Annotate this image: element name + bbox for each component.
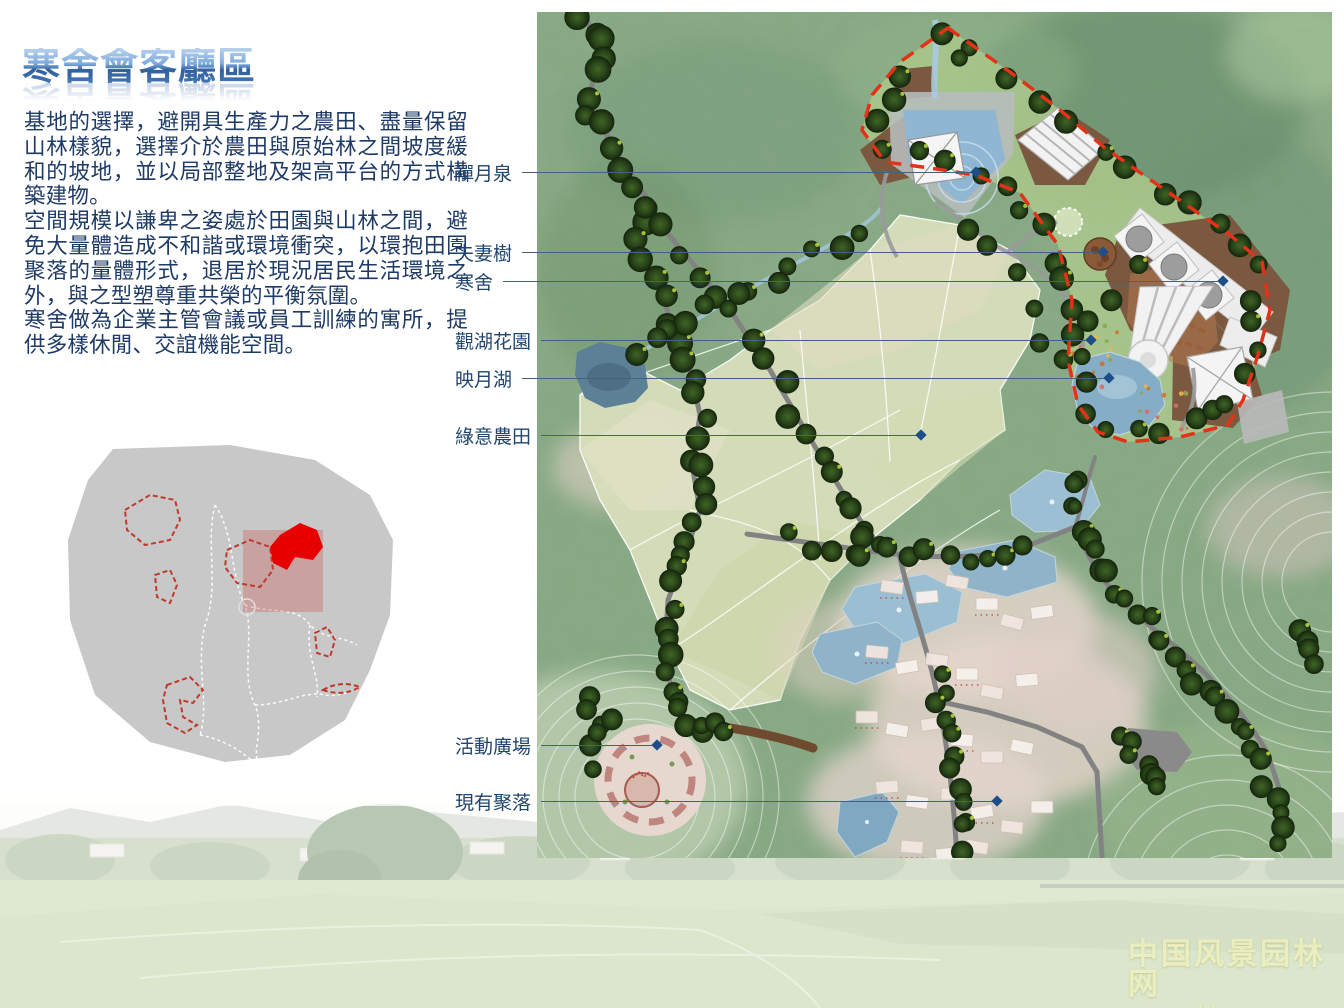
leader-line (541, 801, 996, 802)
locator-map (55, 435, 400, 790)
leader-line (541, 340, 1090, 341)
plan-label-text: 寒舍 (455, 268, 493, 295)
leader-line (503, 281, 1222, 282)
leader-line (522, 378, 1108, 379)
title-block: 寒舍會客廳區 寒舍會客廳區 (22, 48, 256, 117)
leader-diamond (651, 739, 662, 750)
watermark: 中国风景园林网 chla.com.cn (1128, 940, 1344, 1008)
intro-paragraph-1: 基地的選擇，避開具生產力之農田、盡量保留山林樣貌，選擇介於農田與原始林之間坡度緩… (24, 110, 468, 209)
watermark-site-url: chla.com.cn (1186, 1004, 1344, 1008)
leader-line (541, 745, 656, 746)
leader-diamond (1097, 246, 1108, 257)
leader-diamond (970, 166, 981, 177)
leader-diamond (1217, 275, 1228, 286)
locator-site-blob (68, 445, 393, 762)
plan-label-zen-moon-spring: 禪月泉 (455, 159, 980, 185)
round-terrace (1054, 208, 1082, 236)
leader-line (522, 252, 1102, 253)
leader-line (541, 435, 920, 436)
leader-line (522, 172, 975, 173)
plan-label-text: 映月湖 (455, 365, 512, 392)
leader-diamond (915, 429, 926, 440)
plan-label-hanshe-lodge: 寒舍 (455, 268, 1227, 294)
plan-label-existing-settlement: 現有聚落 (455, 788, 1001, 814)
watermark-site-name: 中国风景园林网 (1128, 940, 1344, 1000)
plan-label-green-farmland: 綠意農田 (455, 422, 925, 448)
intro-paragraph-2: 空間規模以謙卑之姿處於田園與山林之間，避免大量體造成不和諧或環境衝突，以環抱田園… (24, 209, 468, 308)
intro-paragraph-3: 寒舍做為企業主管會議或員工訓練的寓所，提供多樣休閒、交誼機能空間。 (24, 308, 468, 358)
plan-label-text: 夫妻樹 (455, 239, 512, 266)
leader-diamond (1103, 372, 1114, 383)
plan-label-text: 禪月泉 (455, 159, 512, 186)
plan-label-activity-plaza: 活動廣場 (455, 732, 661, 758)
plan-label-couple-trees: 夫妻樹 (455, 239, 1107, 265)
plan-label-moon-reflection-lake: 映月湖 (455, 365, 1113, 391)
plan-label-text: 現有聚落 (455, 788, 531, 815)
plan-label-text: 綠意農田 (455, 422, 531, 449)
leader-diamond (1085, 334, 1096, 345)
plan-label-lake-view-garden: 觀湖花園 (455, 327, 1095, 353)
intro-paragraphs: 基地的選擇，避開具生產力之農田、盡量保留山林樣貌，選擇介於農田與原始林之間坡度緩… (24, 110, 468, 358)
plan-label-text: 活動廣場 (455, 732, 531, 759)
presentation-slide: 寒舍會客廳區 寒舍會客廳區 基地的選擇，避開具生產力之農田、盡量保留山林樣貌，選… (0, 0, 1344, 1008)
leader-diamond (991, 795, 1002, 806)
plan-label-text: 觀湖花園 (455, 327, 531, 354)
